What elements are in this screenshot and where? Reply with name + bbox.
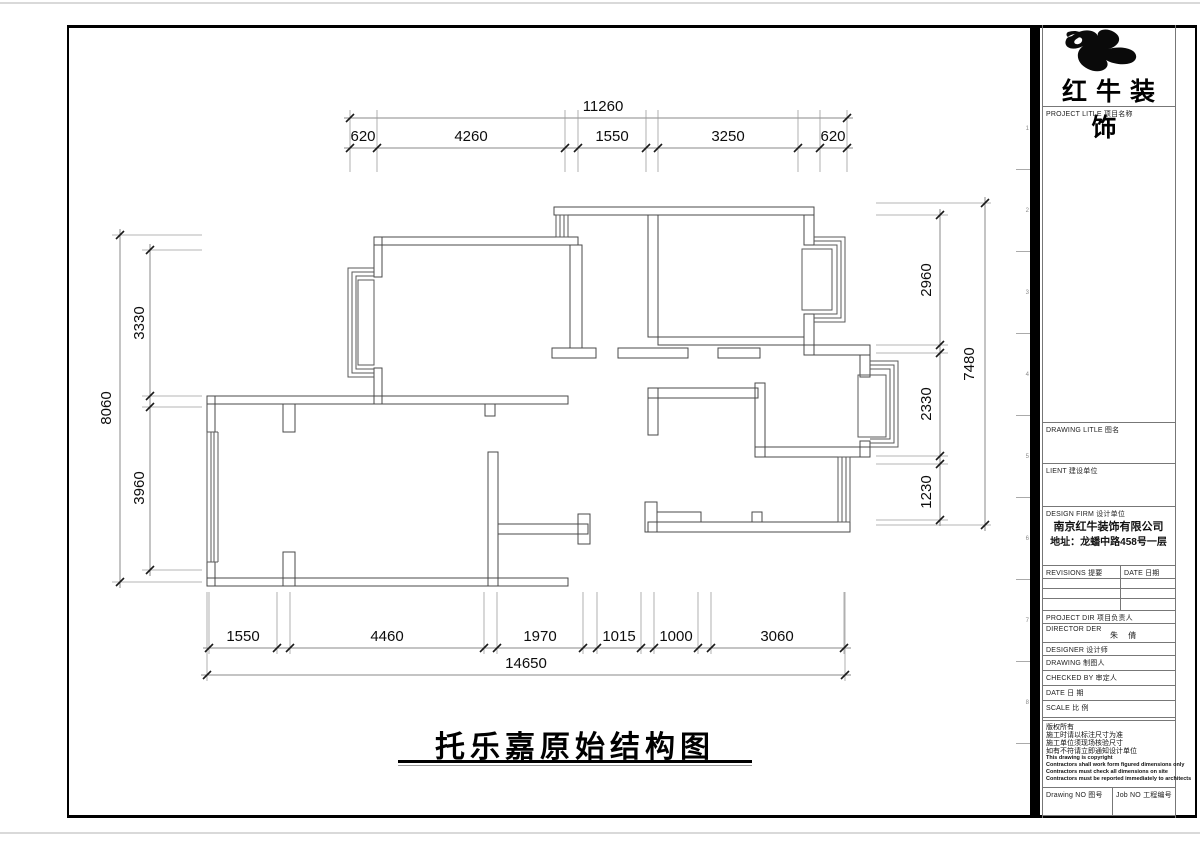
director-label: DIRECTOR DER xyxy=(1046,626,1102,633)
titleblock-line xyxy=(1042,463,1175,464)
titleblock-line xyxy=(1042,642,1175,643)
dim-left-seg: 3960 xyxy=(132,443,148,533)
titleblock-line xyxy=(1042,685,1175,686)
copyright-line: Contractors must be reported immediately… xyxy=(1046,776,1191,782)
drawing-by-label: DRAWING 制图人 xyxy=(1046,658,1105,668)
bay-window-mid-right xyxy=(858,361,898,447)
window-kitchen-right xyxy=(838,457,850,522)
copyright-line: This drawing is copyright xyxy=(1046,755,1113,761)
titleblock-line xyxy=(1042,717,1175,718)
dim-bottom-seg: 1000 xyxy=(631,629,721,645)
copyright-line: Contractors shall work form figured dime… xyxy=(1046,762,1184,768)
job-no-label: Job NO 工程编号 xyxy=(1116,790,1172,800)
dim-bottom-seg: 1550 xyxy=(198,629,288,645)
drawing-no-label: Drawing NO 图号 xyxy=(1046,790,1103,800)
ruler-mark: 7 xyxy=(1019,618,1029,624)
ruler-mark: 2 xyxy=(1019,208,1029,214)
dim-right-seg: 1230 xyxy=(919,447,935,537)
ruler-mark: 4 xyxy=(1019,372,1029,378)
drawing-title-label: DRAWING LITLE 图名 xyxy=(1046,425,1119,435)
project-dir-label: PROJECT DIR 项目负责人 xyxy=(1046,613,1133,623)
copyright-line: Contractors must check all dimensions on… xyxy=(1046,769,1168,775)
client-label: LIENT 建设单位 xyxy=(1046,466,1098,476)
design-firm-name: 南京红牛装饰有限公司 xyxy=(1042,518,1175,534)
titleblock-line xyxy=(1042,700,1175,701)
titleblock-line xyxy=(1042,655,1175,656)
titleblock-line xyxy=(1042,623,1175,624)
checked-by-label: CHECKED BY 审定人 xyxy=(1046,673,1117,683)
scale-label: SCALE 比 例 xyxy=(1046,703,1089,713)
titleblock-inner-right-border xyxy=(1175,25,1176,818)
ruler-tick xyxy=(1016,415,1030,416)
ruler-tick xyxy=(1016,333,1030,334)
plan-title-underline-thin xyxy=(398,765,752,766)
titleblock-line xyxy=(1042,422,1175,423)
dim-right-total: 7480 xyxy=(962,319,978,409)
titleblock-line xyxy=(1042,610,1175,611)
dim-bottom-seg: 4460 xyxy=(342,629,432,645)
dim-top-seg: 1550 xyxy=(567,129,657,145)
ruler-tick xyxy=(1016,579,1030,580)
dim-top-seg: 4260 xyxy=(426,129,516,145)
ruler-tick xyxy=(1016,251,1030,252)
titleblock-line xyxy=(1042,787,1175,788)
dim-bottom-seg: 3060 xyxy=(732,629,822,645)
dim-top-seg: 620 xyxy=(318,129,408,145)
ruler-mark: 3 xyxy=(1019,290,1029,296)
director-name: 朱 倩 xyxy=(1110,630,1140,641)
dim-right-seg: 2330 xyxy=(919,359,935,449)
design-firm-address: 地址：龙蟠中路458号一层 xyxy=(1042,533,1175,548)
titleblock-line xyxy=(1112,787,1113,815)
revisions-date-label: DATE 日期 xyxy=(1124,568,1160,578)
brand-name: 红牛装饰 xyxy=(1042,72,1175,144)
ruler-mark: 8 xyxy=(1019,700,1029,706)
walls xyxy=(207,207,870,586)
ruler-mark: 6 xyxy=(1019,536,1029,542)
project-title-label: PROJECT LITLE 项目名称 xyxy=(1046,109,1133,119)
titleblock-line xyxy=(1042,598,1175,599)
ruler-tick xyxy=(1016,497,1030,498)
date-label: DATE 日 期 xyxy=(1046,688,1084,698)
titleblock-line xyxy=(1042,106,1175,107)
titleblock-line xyxy=(1042,506,1175,507)
drawing-sheet: 11260 620 4260 1550 3250 620 1550 4460 1… xyxy=(0,0,1200,844)
titleblock-line xyxy=(1042,588,1175,589)
titleblock-line xyxy=(1042,720,1175,721)
designer-label: DESIGNER 设计师 xyxy=(1046,645,1108,655)
dim-top-seg: 3250 xyxy=(683,129,773,145)
dim-bottom-total: 14650 xyxy=(481,656,571,672)
ruler-tick xyxy=(1016,661,1030,662)
rednote-bull-logo-icon xyxy=(1058,28,1158,76)
ruler-tick xyxy=(1016,743,1030,744)
titleblock-line xyxy=(1042,578,1175,579)
dim-bottom-seg: 1970 xyxy=(495,629,585,645)
ruler-mark: 1 xyxy=(1019,126,1029,132)
bay-window-left xyxy=(348,268,374,377)
dim-left-total: 8060 xyxy=(99,363,115,453)
ruler-tick xyxy=(1016,169,1030,170)
titleblock-line xyxy=(1042,815,1175,816)
bay-window-top-right xyxy=(802,237,845,322)
revisions-label: REVISIONS 提要 xyxy=(1046,568,1102,578)
dim-top-total: 11260 xyxy=(558,99,648,115)
window-corridor-top xyxy=(556,215,568,237)
titleblock-line xyxy=(1042,670,1175,671)
titleblock-line xyxy=(1042,565,1175,566)
dim-top-seg: 620 xyxy=(788,129,878,145)
dim-right-seg: 2960 xyxy=(919,235,935,325)
titleblock-line xyxy=(1120,565,1121,610)
plan-title-underline xyxy=(398,760,752,763)
window-living-left xyxy=(207,432,218,562)
ruler-mark: 5 xyxy=(1019,454,1029,460)
dim-left-seg: 3330 xyxy=(132,278,148,368)
